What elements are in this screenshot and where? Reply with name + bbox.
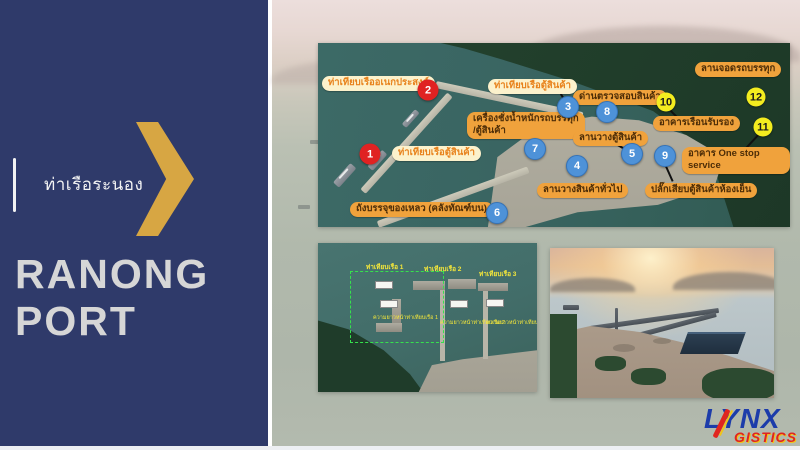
sunset-aerial-photo [550, 248, 774, 398]
sunset-warehouse [680, 332, 746, 354]
title-tick-mark [13, 158, 16, 212]
map-label: ท่าเทียบเรือตู้สินค้า [392, 146, 481, 161]
map-marker-8: 8 [596, 101, 618, 123]
sunset-dirt-pile [613, 344, 635, 352]
page-title-line1: RANONG [15, 251, 209, 298]
thai-title: ท่าเรือระนอง [44, 171, 143, 198]
map-label: อาคารเรือนรับรอง [653, 116, 740, 131]
map-marker-4: 4 [566, 155, 588, 177]
diagram-dimension-box [450, 300, 468, 308]
sunset-dirt-pile [653, 338, 671, 344]
map-annotations: ท่าเทียบเรืออเนกประสงค์ท่าเทียบเรือตู้สิ… [318, 43, 790, 227]
map-label: อาคาร One stop service [682, 147, 790, 174]
map-label: ท่าเทียบเรือตู้สินค้า [488, 79, 577, 94]
map-label: ถังบรรจุของเหลว (คลังทัณฑ์บน) [350, 202, 493, 217]
diagram-annotations: ท่าเทียบเรือ 1ท่าเทียบเรือ 2ท่าเทียบเรือ… [318, 243, 537, 392]
map-label: ลานจอดรถบรรทุก [695, 62, 781, 77]
map-label: ด่านตรวจสอบสินค้า [573, 90, 667, 105]
slide-bottom-edge [0, 446, 800, 450]
diagram-length-label: ความยาวหน้าท่าเทียบเรือ 1 [373, 314, 438, 322]
lynx-logo: LYNX GISTICS [698, 403, 798, 447]
diagram-dimension-box [375, 281, 393, 289]
port-map-photo: ท่าเทียบเรืออเนกประสงค์ท่าเทียบเรือตู้สิ… [318, 43, 790, 227]
sunset-vegetation-patch [595, 356, 626, 371]
sunset-crane [615, 308, 618, 332]
map-marker-1: 1 [360, 144, 381, 165]
map-marker-5: 5 [621, 143, 643, 165]
map-marker-10: 10 [657, 93, 676, 112]
diagram-berth-label: ท่าเทียบเรือ 1 [366, 262, 403, 272]
marker-connector-line [665, 165, 673, 181]
diagram-dimension-box [380, 300, 398, 308]
map-label: ปลั๊กเสียบตู้สินค้าห้องเย็น [645, 183, 757, 198]
background-boat [298, 205, 310, 209]
map-marker-7: 7 [524, 138, 546, 160]
map-marker-3: 3 [557, 96, 579, 118]
berth-diagram-photo: ท่าเทียบเรือ 1ท่าเทียบเรือ 2ท่าเทียบเรือ… [318, 243, 537, 392]
map-marker-6: 6 [486, 202, 508, 224]
map-marker-11: 11 [754, 118, 773, 137]
sidebar-panel: ท่าเรือระนอง RANONG PORT [0, 0, 268, 446]
diagram-length-label: ความยาวหน้าท่าเทียบเรือ 3 [486, 319, 537, 327]
map-marker-2: 2 [418, 80, 439, 101]
map-marker-12: 12 [747, 88, 766, 107]
sunset-vegetation-right [702, 368, 774, 398]
diagram-berth-label: ท่าเทียบเรือ 2 [424, 264, 461, 274]
map-label: ลานวางสินค้าทั่วไป [537, 183, 628, 198]
sunset-vegetation-patch [631, 368, 667, 385]
slide-root: ท่าเรือระนอง RANONG PORT ท่าเทียบเรืออเน… [0, 0, 800, 450]
page-title-line2: PORT [15, 298, 209, 345]
map-marker-9: 9 [654, 145, 676, 167]
logo-text-gistics: GISTICS [734, 429, 797, 445]
diagram-berth-label: ท่าเทียบเรือ 3 [479, 269, 516, 279]
sunset-vegetation-left [550, 314, 577, 398]
sunset-ship [563, 305, 579, 310]
diagram-dimension-box [486, 299, 504, 307]
page-title: RANONG PORT [15, 251, 209, 345]
chevron-right-icon [136, 122, 194, 236]
